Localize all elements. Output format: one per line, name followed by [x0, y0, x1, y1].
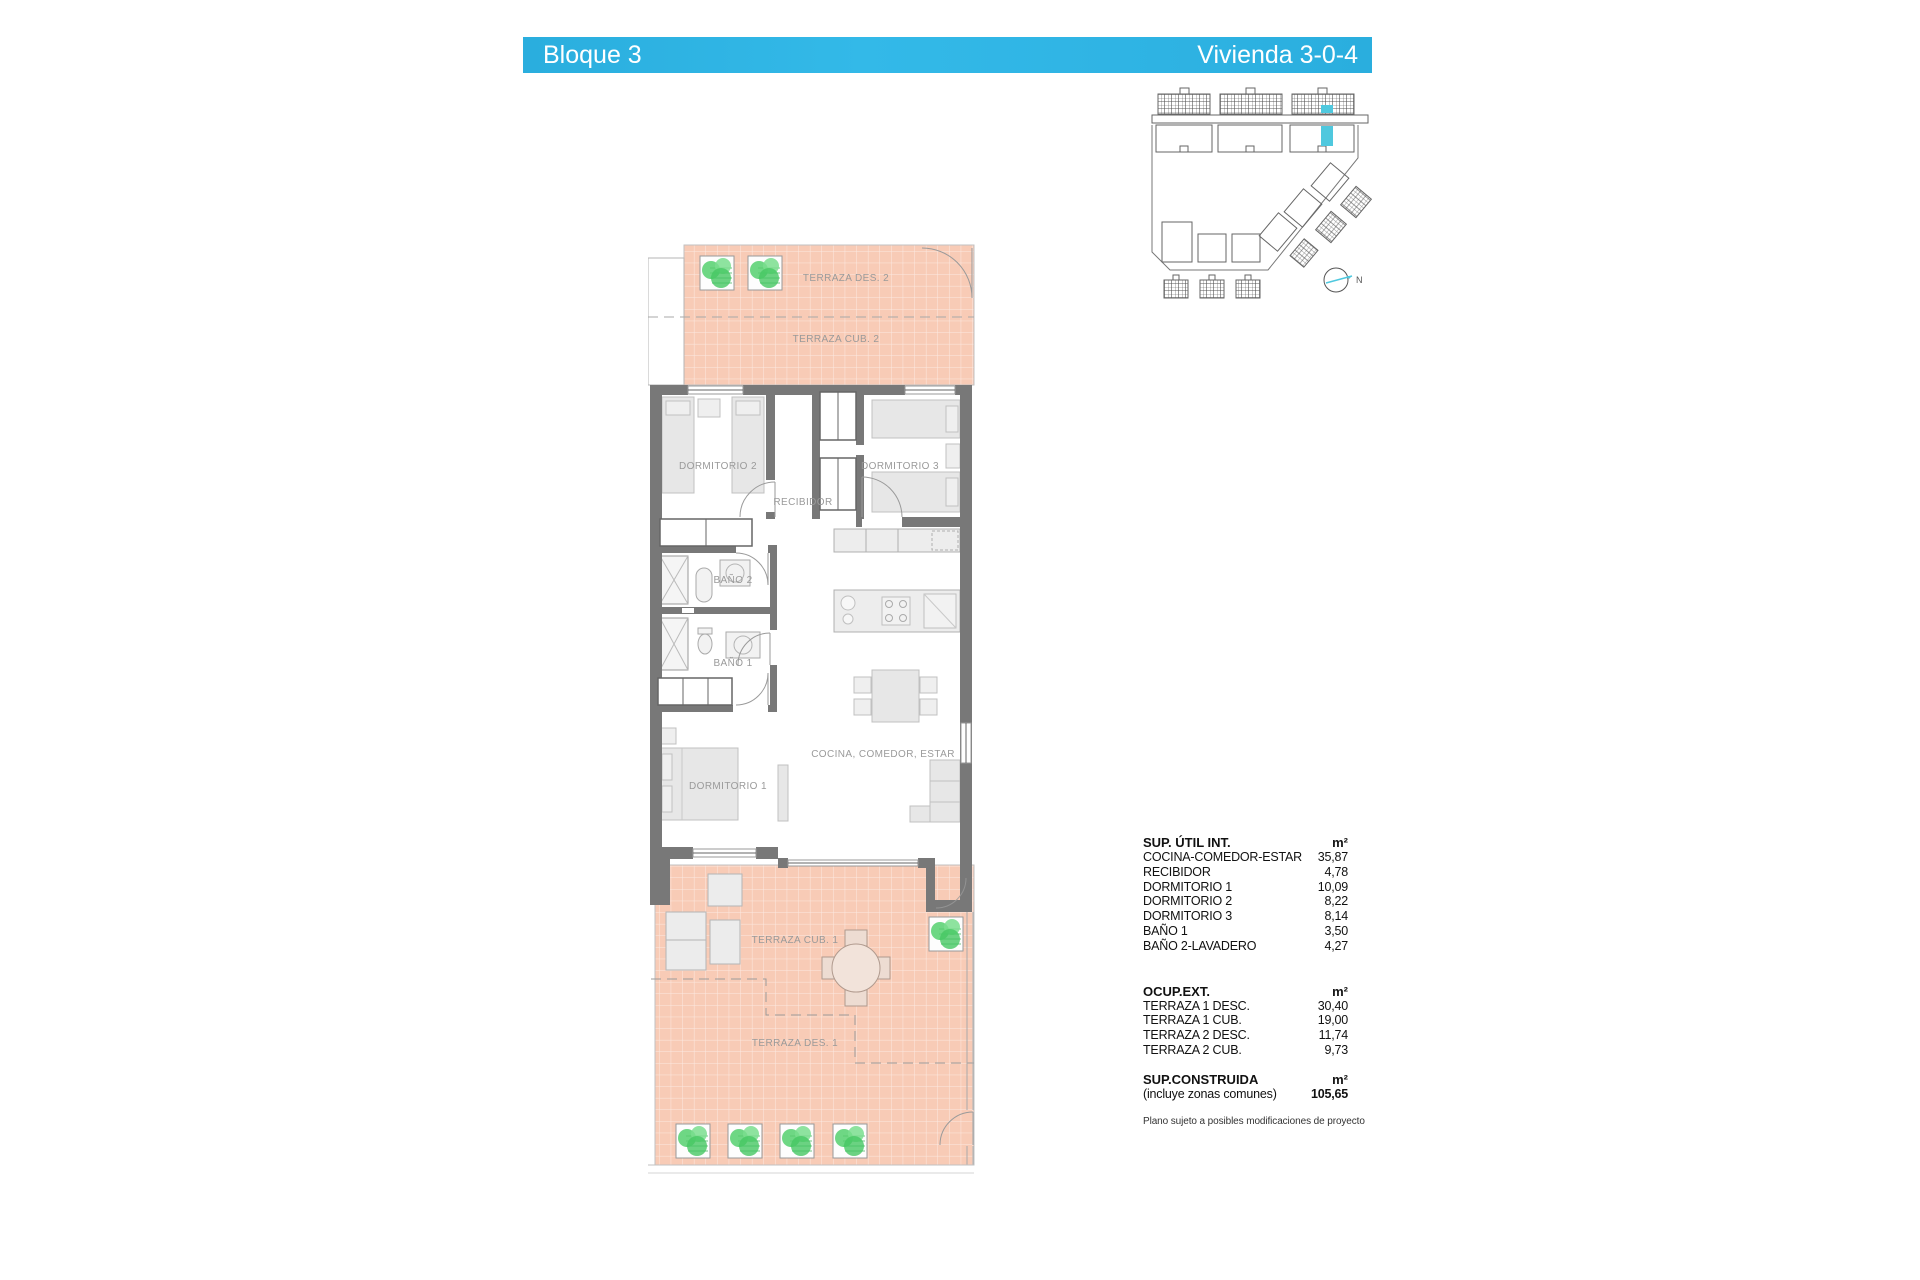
disclaimer-note: Plano sujeto a posibles modificaciones d…	[1143, 1116, 1383, 1127]
kitchen-cabinets	[834, 529, 960, 552]
row-label: TERRAZA 2 DESC.	[1143, 1028, 1250, 1043]
row-value: 105,65	[1302, 1087, 1348, 1102]
label-dormitorio-2: DORMITORIO 2	[679, 461, 757, 472]
wall-notch	[682, 608, 694, 613]
row-label: DORMITORIO 2	[1143, 894, 1232, 909]
tv-unit	[778, 765, 788, 821]
label-dormitorio-1: DORMITORIO 1	[689, 781, 767, 792]
table-ext-title: OCUP.EXT.	[1143, 984, 1210, 999]
kitchen-counter	[834, 590, 960, 632]
row-value: 9,73	[1302, 1043, 1348, 1058]
row-label: COCINA-COMEDOR-ESTAR	[1143, 850, 1302, 865]
table-util-header: SUP. ÚTIL INT. m²	[1143, 835, 1348, 850]
row-value: 8,14	[1302, 909, 1348, 924]
block-title: Bloque 3	[523, 41, 642, 70]
row-value: 11,74	[1302, 1028, 1348, 1043]
label-terraza-des-2: TERRAZA DES. 2	[803, 273, 889, 284]
row-value: 19,00	[1302, 1013, 1348, 1028]
row-label: TERRAZA 1 CUB.	[1143, 1013, 1242, 1028]
table-row: DORMITORIO 28,22	[1143, 894, 1348, 909]
table-construida-unit: m²	[1332, 1072, 1348, 1087]
label-cocina: COCINA, COMEDOR, ESTAR	[811, 749, 955, 760]
area-tables: SUP. ÚTIL INT. m² COCINA-COMEDOR-ESTAR35…	[1143, 835, 1348, 1102]
site-plan-svg: N	[1140, 84, 1420, 324]
table-row: TERRAZA 2 CUB.9,73	[1143, 1043, 1348, 1058]
table-row: TERRAZA 1 DESC.30,40	[1143, 999, 1348, 1014]
label-terraza-cub-2: TERRAZA CUB. 2	[793, 334, 880, 345]
row-label: TERRAZA 2 CUB.	[1143, 1043, 1242, 1058]
row-value: 3,50	[1302, 924, 1348, 939]
row-value: 4,78	[1302, 865, 1348, 880]
row-label: (incluye zonas comunes)	[1143, 1087, 1277, 1102]
table-construida-title: SUP.CONSTRUIDA	[1143, 1072, 1258, 1087]
label-recibidor: RECIBIDOR	[773, 497, 832, 508]
north-label: N	[1356, 275, 1363, 285]
label-bano-2: BAÑO 2	[713, 573, 752, 586]
label-dormitorio-3: DORMITORIO 3	[861, 461, 939, 472]
unit-title: Vivienda 3-0-4	[1197, 41, 1372, 70]
row-label: DORMITORIO 3	[1143, 909, 1232, 924]
label-bano-1: BAÑO 1	[713, 656, 752, 669]
row-value: 35,87	[1302, 850, 1348, 865]
table-row: TERRAZA 1 CUB.19,00	[1143, 1013, 1348, 1028]
floor-plan-svg: TERRAZA DES. 2 TERRAZA CUB. 2 DORMITORIO…	[648, 240, 978, 1180]
table-construida-header: SUP.CONSTRUIDA m²	[1143, 1072, 1348, 1087]
header-bar: Bloque 3 Vivienda 3-0-4	[523, 37, 1372, 73]
north-compass-icon: N	[1324, 268, 1363, 292]
row-label: DORMITORIO 1	[1143, 880, 1232, 895]
table-ext-header: OCUP.EXT. m²	[1143, 984, 1348, 999]
terraza-2	[648, 245, 974, 385]
site-highlight-roof	[1321, 105, 1333, 113]
row-value: 8,22	[1302, 894, 1348, 909]
table-row: DORMITORIO 110,09	[1143, 880, 1348, 895]
site-plan: N	[1140, 84, 1420, 324]
table-row: (incluye zonas comunes) 105,65	[1143, 1087, 1348, 1102]
site-highlight-unit	[1321, 126, 1333, 146]
row-value: 30,40	[1302, 999, 1348, 1014]
table-row: TERRAZA 2 DESC.11,74	[1143, 1028, 1348, 1043]
label-terraza-cub-1: TERRAZA CUB. 1	[752, 935, 839, 946]
terrace-pillar	[648, 258, 684, 385]
table-util-title: SUP. ÚTIL INT.	[1143, 835, 1231, 850]
table-ext-unit: m²	[1332, 984, 1348, 999]
table-util-unit: m²	[1332, 835, 1348, 850]
terraza-1	[648, 865, 974, 1173]
site-buildings	[1152, 88, 1371, 298]
row-label: RECIBIDOR	[1143, 865, 1211, 880]
row-label: BAÑO 2-LAVADERO	[1143, 939, 1256, 954]
label-terraza-des-1: TERRAZA DES. 1	[752, 1038, 838, 1049]
row-label: BAÑO 1	[1143, 924, 1188, 939]
row-value: 4,27	[1302, 939, 1348, 954]
table-row: COCINA-COMEDOR-ESTAR35,87	[1143, 850, 1348, 865]
floor-plan: TERRAZA DES. 2 TERRAZA CUB. 2 DORMITORIO…	[648, 240, 978, 1180]
table-row: DORMITORIO 38,14	[1143, 909, 1348, 924]
table-row: BAÑO 2-LAVADERO4,27	[1143, 939, 1348, 954]
row-value: 10,09	[1302, 880, 1348, 895]
row-label: TERRAZA 1 DESC.	[1143, 999, 1250, 1014]
table-row: BAÑO 13,50	[1143, 924, 1348, 939]
table-row: RECIBIDOR4,78	[1143, 865, 1348, 880]
